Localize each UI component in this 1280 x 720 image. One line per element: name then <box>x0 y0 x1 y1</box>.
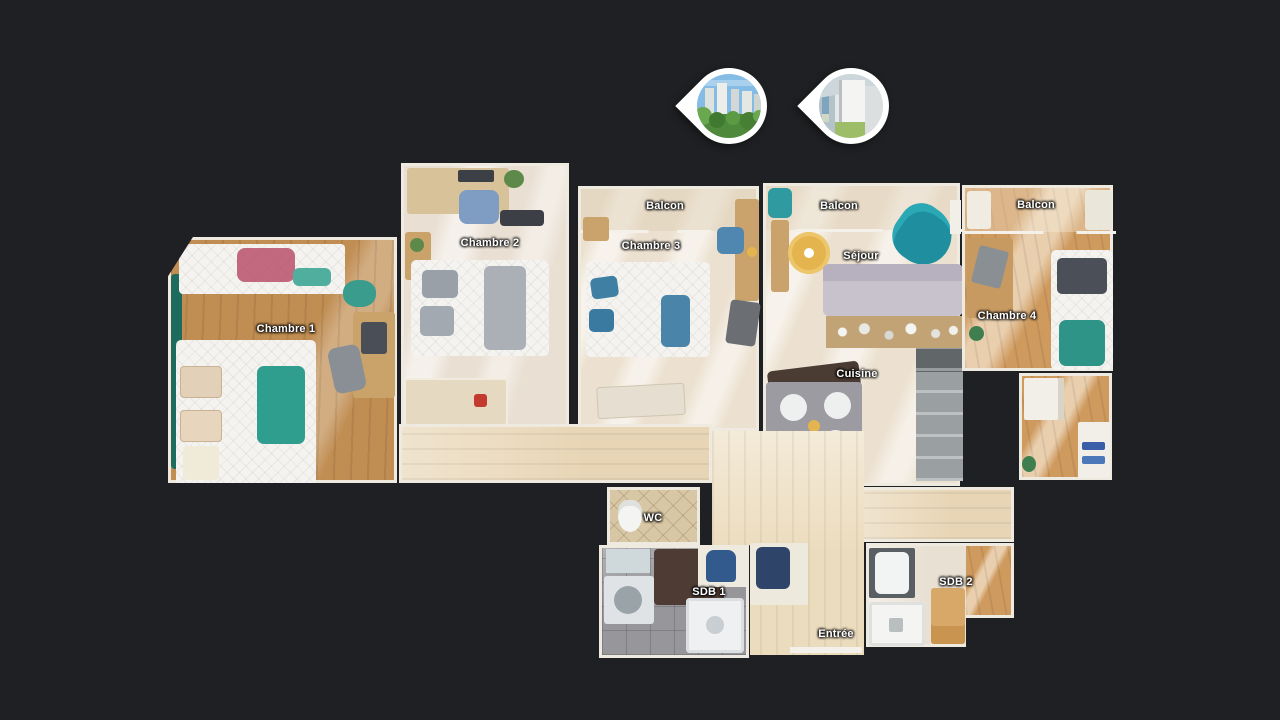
bookshelf <box>1078 422 1110 478</box>
pillar <box>950 200 961 234</box>
corridor[interactable] <box>399 424 712 483</box>
balcony-item <box>967 191 991 229</box>
small-table <box>583 217 609 241</box>
dollhouse-view: Chambre 1 Chambre 2 Balcon Chambre 3 Bal… <box>0 0 1280 720</box>
teal-duvet <box>257 366 305 444</box>
kitchen-counter <box>916 348 963 481</box>
room-label-balcon-sejour: Balcon <box>820 200 858 212</box>
closet-clutter <box>404 378 508 426</box>
books <box>1082 456 1105 464</box>
lamp <box>747 247 757 257</box>
room-chambre-4[interactable] <box>962 185 1113 371</box>
room-label-entree: Entrée <box>818 628 853 640</box>
blue-chair <box>459 190 499 224</box>
room-sdb-1[interactable] <box>599 545 749 658</box>
room-chambre-2[interactable] <box>401 163 569 429</box>
plant <box>410 238 424 252</box>
room-chambre-1[interactable] <box>168 237 397 483</box>
desk-items <box>361 322 387 354</box>
gray-pillow <box>420 306 454 336</box>
blue-pillow <box>589 309 614 332</box>
city-view-image <box>697 74 761 138</box>
pink-bedding <box>237 248 295 282</box>
sink-bowl <box>706 616 724 634</box>
sofa-back <box>823 264 963 281</box>
dark-pillow <box>1057 258 1107 294</box>
room-label-chambre-3: Chambre 3 <box>622 240 681 252</box>
balcony-view-pin[interactable] <box>797 52 904 159</box>
hall-dressing[interactable] <box>1019 373 1112 480</box>
teal-towel <box>293 268 331 286</box>
toilet <box>618 500 642 532</box>
room-label-cuisine: Cuisine <box>836 368 877 380</box>
gray-pillow <box>422 270 458 298</box>
pillow <box>180 366 222 398</box>
room-label-sejour: Séjour <box>843 250 878 262</box>
bar-counter <box>826 316 963 348</box>
coat-items <box>756 547 790 589</box>
laundry-basket <box>706 550 736 582</box>
blue-duvet <box>661 295 690 347</box>
exterior-view-thumbnail <box>697 74 761 138</box>
red-item <box>474 394 487 407</box>
room-chambre-3[interactable] <box>578 186 759 431</box>
room-label-chambre-1: Chambre 1 <box>257 323 316 335</box>
entry-door <box>790 647 862 653</box>
blue-pillow <box>590 275 620 300</box>
plant <box>504 170 524 188</box>
balcony-item <box>1085 190 1112 230</box>
room-label-sdb-2: SDB 2 <box>939 576 972 588</box>
mug <box>804 248 814 258</box>
books <box>1082 442 1105 450</box>
wood-cabinet <box>931 588 965 644</box>
sink <box>875 552 909 594</box>
room-sdb-2-extension[interactable] <box>966 543 1014 618</box>
room-label-chambre-4: Chambre 4 <box>978 310 1037 322</box>
gray-item <box>725 299 761 347</box>
room-label-balcon-chambre-4: Balcon <box>1017 199 1055 211</box>
balcony-wall <box>965 231 1116 234</box>
room-label-balcon-chambre-3: Balcon <box>646 200 684 212</box>
balcony-chair <box>768 188 792 218</box>
blue-chair <box>717 227 744 254</box>
cupboard <box>1024 378 1064 420</box>
dark-chair <box>500 210 544 226</box>
centerpiece <box>808 420 820 432</box>
room-label-sdb-1: SDB 1 <box>692 586 725 598</box>
balcony-view-image <box>819 74 883 138</box>
pillow <box>180 410 222 442</box>
monitor <box>458 170 494 182</box>
balcony-view-thumbnail <box>819 74 883 138</box>
wood-shelf <box>771 220 789 292</box>
shower-drain <box>889 618 903 632</box>
hallway-right[interactable] <box>864 487 1014 542</box>
exterior-view-pin[interactable] <box>675 52 782 159</box>
plant <box>1022 456 1036 472</box>
plate <box>780 394 807 421</box>
plant <box>969 326 984 341</box>
beanbag <box>343 280 376 307</box>
bench <box>596 383 686 420</box>
washer-drum <box>614 586 642 614</box>
floor-tray <box>183 446 219 480</box>
room-label-chambre-2: Chambre 2 <box>461 237 520 249</box>
room-label-wc: WC <box>644 512 663 524</box>
mirror <box>606 549 650 573</box>
room-sdb-2[interactable] <box>866 543 966 647</box>
plate <box>824 392 851 419</box>
gray-blanket <box>484 266 526 350</box>
teal-blanket <box>1059 320 1105 366</box>
